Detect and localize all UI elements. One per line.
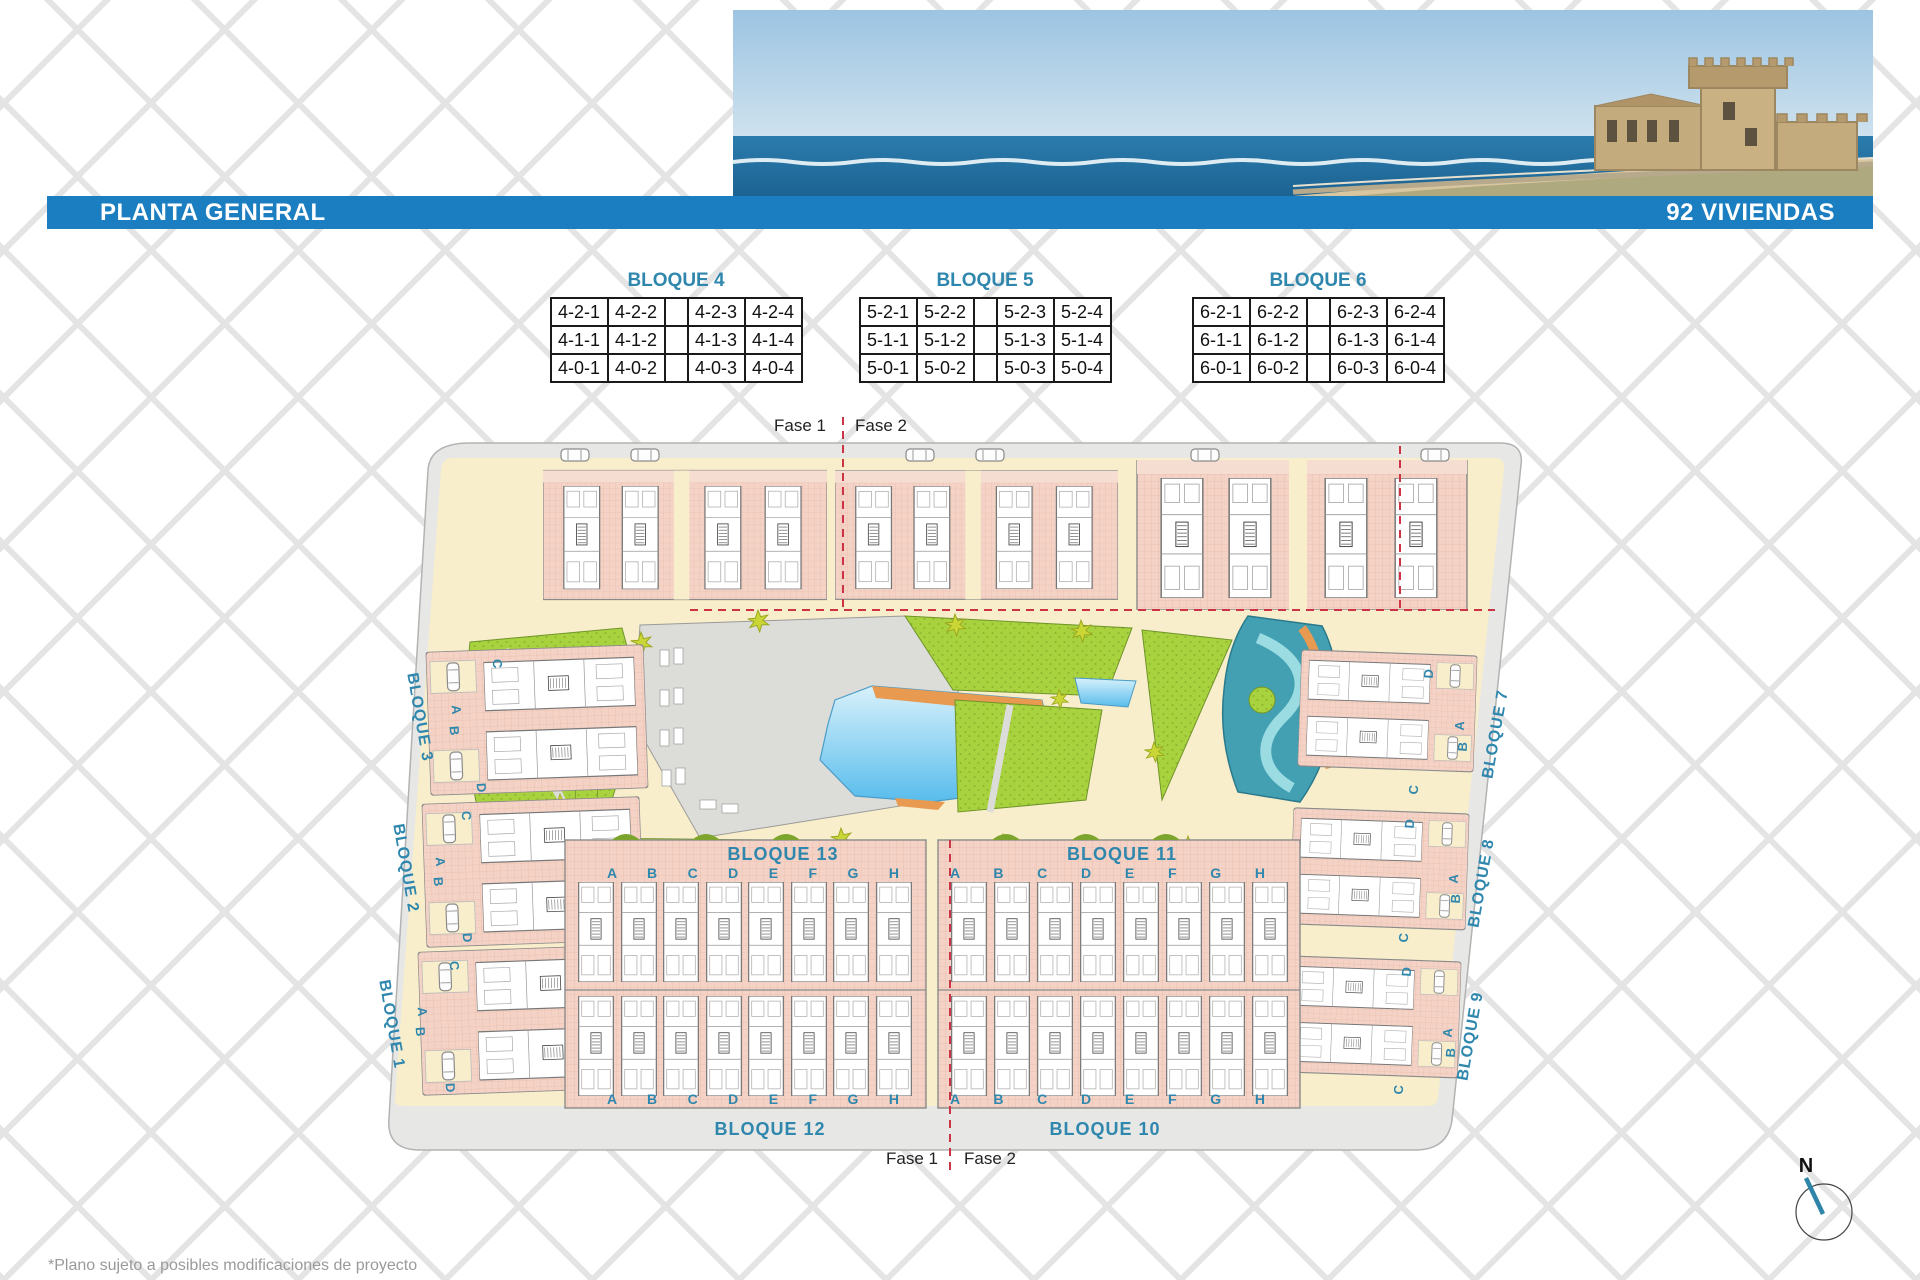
unit-cell: 5-2-4	[1054, 298, 1111, 326]
spacer-cell	[665, 354, 688, 382]
site-plan: Fase 1 Fase 2 Fase 1 Fase 2 BLOQUE 3 BLO…	[360, 405, 1550, 1180]
unit-letter: A	[415, 1006, 431, 1017]
footer-note: *Plano sujeto a posibles modificaciones …	[48, 1257, 417, 1275]
unit-cell: 6-2-2	[1250, 298, 1307, 326]
label-bloque12: BLOQUE 12	[714, 1119, 825, 1139]
unit-letter: B	[1455, 741, 1471, 751]
unit-cell: 4-1-2	[608, 326, 665, 354]
unit-cell: 5-2-1	[860, 298, 917, 326]
unit-letter: B	[431, 876, 447, 886]
building-bloque3	[426, 644, 649, 795]
table-title: BLOQUE 5	[855, 270, 1115, 292]
unit-letter: D	[1399, 966, 1415, 976]
unit-letter: C	[1391, 1084, 1407, 1095]
table-title: BLOQUE 4	[546, 270, 806, 292]
unit-cell: 4-2-2	[608, 298, 665, 326]
table-row: 6-0-1 6-0-2 6-0-3 6-0-4	[1193, 354, 1444, 382]
spacer-cell	[974, 326, 997, 354]
building-bloque11-10	[938, 840, 1300, 1108]
unit-cell: 4-2-4	[745, 298, 802, 326]
unit-cell: 5-1-4	[1054, 326, 1111, 354]
spacer-cell	[1307, 298, 1330, 326]
unit-cell: 4-1-4	[745, 326, 802, 354]
unit-cell: 6-2-1	[1193, 298, 1250, 326]
table-row: 4-0-1 4-0-2 4-0-3 4-0-4	[551, 354, 802, 382]
right-buildings	[1282, 650, 1478, 1078]
top-buildings	[543, 449, 1467, 610]
spacer-cell	[665, 298, 688, 326]
garden-mid-right	[955, 700, 1102, 812]
compass: N	[1780, 1148, 1890, 1268]
unit-cell: 6-0-3	[1330, 354, 1387, 382]
spacer-cell	[1307, 326, 1330, 354]
unit-table-bloque4: BLOQUE 4 4-2-1 4-2-2 4-2-3 4-2-4 4-1-1 4…	[546, 270, 806, 383]
table-row: 4-2-1 4-2-2 4-2-3 4-2-4	[551, 298, 802, 326]
unit-cell: 5-2-3	[997, 298, 1054, 326]
unit-cell: 5-0-2	[917, 354, 974, 382]
unit-cell: 4-2-3	[688, 298, 745, 326]
unit-cell: 5-0-4	[1054, 354, 1111, 382]
unit-table-bloque6: BLOQUE 6 6-2-1 6-2-2 6-2-3 6-2-4 6-1-1 6…	[1188, 270, 1448, 383]
label-bloque13: BLOQUE 13	[727, 844, 838, 864]
table-row: 6-2-1 6-2-2 6-2-3 6-2-4	[1193, 298, 1444, 326]
unit-letter: A	[1446, 873, 1462, 884]
table-row: 4-1-1 4-1-2 4-1-3 4-1-4	[551, 326, 802, 354]
unit-letter: A	[433, 856, 449, 867]
building-bloque4	[543, 470, 827, 599]
unit-letter: B	[413, 1026, 429, 1036]
building-bloque5	[835, 471, 1118, 600]
units-badge: 92 VIVIENDAS	[1666, 199, 1873, 227]
unit-letter: A	[1440, 1027, 1456, 1038]
letters-bloque13-top: A B C D E F G H	[607, 865, 899, 881]
unit-letter: B	[1448, 893, 1464, 903]
unit-letter: C	[490, 658, 506, 669]
building-bloque8	[1290, 808, 1470, 930]
label-bloque11: BLOQUE 11	[1067, 844, 1177, 864]
unit-cell: 6-1-3	[1330, 326, 1387, 354]
table-row: 5-0-1 5-0-2 5-0-3 5-0-4	[860, 354, 1111, 382]
north-label: N	[1799, 1155, 1813, 1177]
unit-table-bloque5: BLOQUE 5 5-2-1 5-2-2 5-2-3 5-2-4 5-1-1 5…	[855, 270, 1115, 383]
unit-letter: C	[1406, 784, 1422, 795]
unit-cell: 4-0-1	[551, 354, 608, 382]
spacer-cell	[974, 354, 997, 382]
page-title: PLANTA GENERAL	[47, 199, 326, 227]
unit-cell: 5-1-1	[860, 326, 917, 354]
title-bar: PLANTA GENERAL 92 VIVIENDAS	[47, 196, 1873, 229]
spacer-cell	[974, 298, 997, 326]
unit-letter: D	[443, 1082, 459, 1092]
unit-letter: D	[1402, 818, 1418, 828]
unit-cell: 5-2-2	[917, 298, 974, 326]
unit-letter: C	[1396, 932, 1412, 943]
plan-sheet: PLANTA GENERAL 92 VIVIENDAS BLOQUE 4 4-2…	[0, 0, 1920, 1280]
letters-bloque12-bottom: A B C D E F G H	[607, 1091, 899, 1107]
table-row: 6-1-1 6-1-2 6-1-3 6-1-4	[1193, 326, 1444, 354]
pool-small	[1075, 678, 1136, 707]
unit-letter: A	[1452, 720, 1468, 731]
unit-cell: 4-1-1	[551, 326, 608, 354]
unit-letter: D	[460, 932, 476, 942]
unit-cell: 5-1-3	[997, 326, 1054, 354]
unit-cell: 5-0-1	[860, 354, 917, 382]
phase-bottom-label-1: Fase 1	[886, 1149, 938, 1168]
building-bloque7	[1298, 650, 1478, 772]
unit-cell: 4-1-3	[688, 326, 745, 354]
unit-cell: 6-2-4	[1387, 298, 1444, 326]
unit-cell: 6-0-4	[1387, 354, 1444, 382]
table-title: BLOQUE 6	[1188, 270, 1448, 292]
table-row: 5-2-1 5-2-2 5-2-3 5-2-4	[860, 298, 1111, 326]
unit-cell: 6-1-1	[1193, 326, 1250, 354]
unit-cell: 4-0-4	[745, 354, 802, 382]
unit-cell: 4-2-1	[551, 298, 608, 326]
unit-letter: C	[447, 960, 463, 971]
unit-letter: B	[447, 725, 463, 735]
letters-bloque11-top: A B C D E F G H	[950, 865, 1265, 881]
unit-cell: 6-2-3	[1330, 298, 1387, 326]
label-bloque10: BLOQUE 10	[1049, 1119, 1160, 1139]
unit-cell: 6-1-4	[1387, 326, 1444, 354]
unit-cell: 5-1-2	[917, 326, 974, 354]
unit-cell: 4-0-3	[688, 354, 745, 382]
compass-needle	[1806, 1178, 1823, 1214]
unit-cell: 6-1-2	[1250, 326, 1307, 354]
unit-letter: D	[474, 782, 490, 792]
phase-bottom-label-2: Fase 2	[964, 1149, 1016, 1168]
building-bloque6	[1137, 460, 1467, 610]
unit-letter: A	[449, 704, 465, 715]
table-row: 5-1-1 5-1-2 5-1-3 5-1-4	[860, 326, 1111, 354]
letters-bloque10-bottom: A B C D E F G H	[950, 1091, 1265, 1107]
building-bloque9	[1282, 956, 1462, 1078]
unit-letter: C	[459, 810, 475, 821]
spacer-cell	[1307, 354, 1330, 382]
unit-cell: 5-0-3	[997, 354, 1054, 382]
spacer-cell	[665, 326, 688, 354]
unit-letter: D	[1421, 668, 1437, 678]
unit-cell: 4-0-2	[608, 354, 665, 382]
unit-cell: 6-0-2	[1250, 354, 1307, 382]
phase-top-label-2: Fase 2	[855, 416, 907, 435]
phase-top-label-1: Fase 1	[774, 416, 826, 435]
beach-photo	[733, 10, 1873, 196]
unit-cell: 6-0-1	[1193, 354, 1250, 382]
unit-letter: B	[1443, 1047, 1459, 1057]
